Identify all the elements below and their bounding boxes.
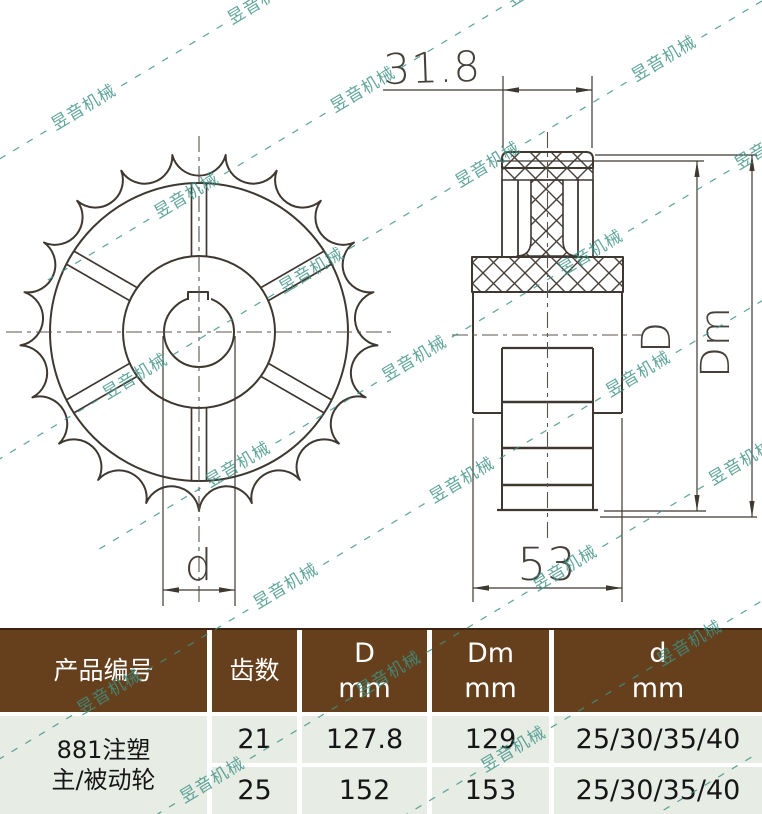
- product-name-line1: 881注塑: [57, 735, 151, 765]
- col-header-d-unit: mm: [632, 671, 685, 706]
- drawing-svg: d: [0, 0, 762, 628]
- dim-Dm-label: Dm: [693, 306, 739, 378]
- cell-D-row1: 127.8: [302, 716, 427, 763]
- col-header-d-label: d: [649, 636, 666, 671]
- col-header-Dm: Dm mm: [432, 630, 549, 712]
- col-header-teeth-label: 齿数: [229, 655, 279, 688]
- col-header-D-unit: mm: [338, 671, 391, 706]
- spoke-line: [269, 264, 332, 301]
- col-header-D-label: D: [354, 636, 375, 671]
- spoke-line: [261, 377, 324, 414]
- page: d: [0, 0, 762, 814]
- cell-Dm-row2: 153: [432, 767, 549, 814]
- side-view-section: 31.8 D Dm: [383, 42, 757, 602]
- cell-Dm-row1: 129: [432, 716, 549, 763]
- spoke-line: [74, 377, 137, 414]
- col-header-Dm-unit: mm: [464, 671, 517, 706]
- dim-d-label: d: [185, 540, 214, 591]
- cell-teeth-row2: 25: [212, 767, 297, 814]
- spoke-line: [269, 364, 332, 401]
- col-header-d: d mm: [554, 630, 762, 712]
- spec-table-wrap: 产品编号 齿数 D mm Dm mm d mm 881注塑 主/被动轮 21: [0, 628, 762, 814]
- cell-D-row2: 152: [302, 767, 427, 814]
- spec-table: 产品编号 齿数 D mm Dm mm d mm 881注塑 主/被动轮 21: [0, 630, 762, 814]
- dim-width-label: 31.8: [383, 42, 482, 94]
- cell-d-row1: 25/30/35/40: [554, 716, 762, 763]
- cell-teeth-row1: 21: [212, 716, 297, 763]
- col-header-product-code-label: 产品编号: [53, 655, 153, 688]
- dim-hub-width-label: 53: [517, 538, 576, 591]
- col-header-teeth: 齿数: [212, 630, 297, 712]
- col-header-Dm-label: Dm: [467, 636, 514, 671]
- spoke-line: [66, 264, 129, 301]
- technical-drawing: d: [0, 0, 762, 628]
- dim-D-label: D: [634, 321, 680, 353]
- spoke-line: [74, 251, 137, 288]
- product-name-cell: 881注塑 主/被动轮: [0, 716, 207, 814]
- spoke-line: [66, 364, 129, 401]
- col-header-D: D mm: [302, 630, 427, 712]
- cell-d-row2: 25/30/35/40: [554, 767, 762, 814]
- product-name-line2: 主/被动轮: [51, 765, 155, 795]
- front-view-sprocket: d: [6, 136, 394, 606]
- col-header-product-code: 产品编号: [0, 630, 207, 712]
- dimension-Dm: [749, 155, 754, 517]
- spoke-line: [261, 251, 324, 288]
